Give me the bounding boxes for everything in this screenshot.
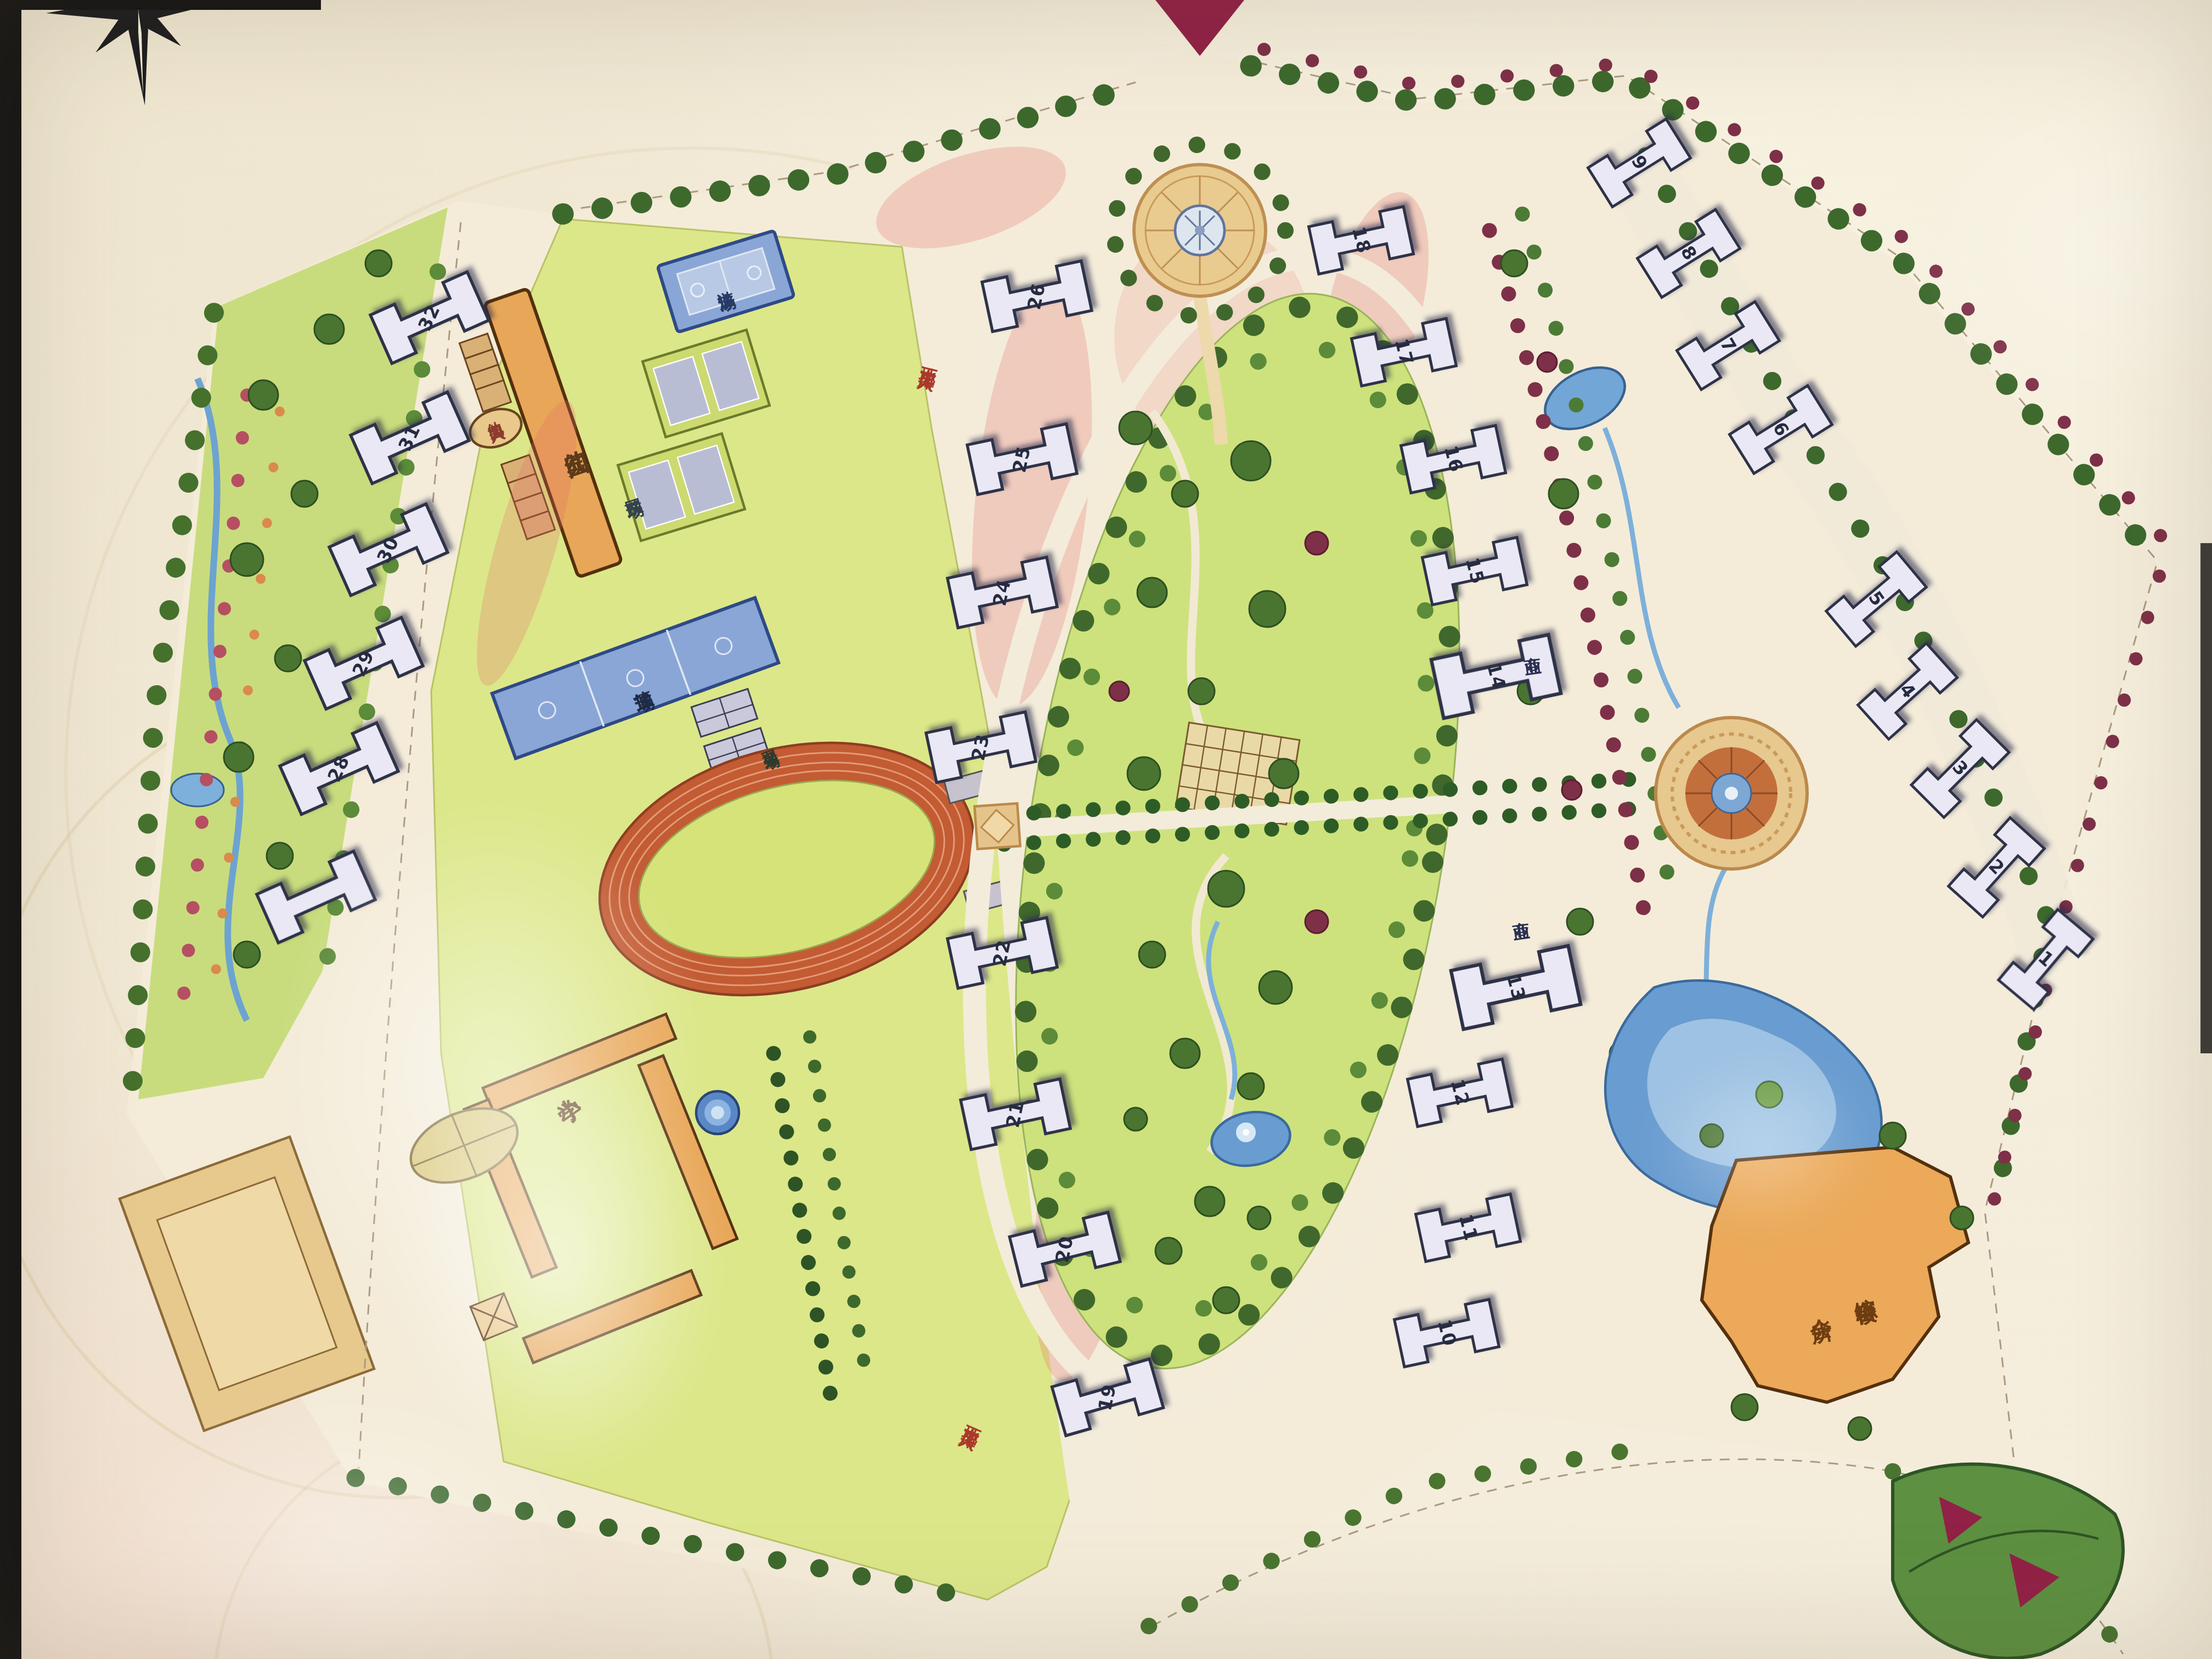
circular-fountain-plaza (1656, 718, 1807, 869)
plan-scene: 幼儿园 幼儿园入口 游泳场 网球场 篮球场 羽毛球场 小学 商业 商业 会所 综… (0, 0, 2212, 1659)
compass-rose-icon (46, 0, 211, 105)
frame-edge-top (0, 0, 321, 10)
frame-edge-left (0, 0, 21, 1659)
masterplan-photo: 幼儿园 幼儿园入口 游泳场 网球场 篮球场 羽毛球场 小学 商业 商业 会所 综… (0, 0, 2212, 1659)
southeast-entrance (1893, 1464, 2123, 1658)
screenshot: 幼儿园 幼儿园入口 游泳场 网球场 篮球场 羽毛球场 小学 商业 商业 会所 综… (0, 0, 2212, 1659)
north-entrance-arrow-icon (1155, 0, 1244, 56)
frame-edge-right (2200, 543, 2212, 1053)
axis-square-plaza (974, 803, 1020, 849)
mosaic-circle-plaza (696, 1091, 739, 1134)
